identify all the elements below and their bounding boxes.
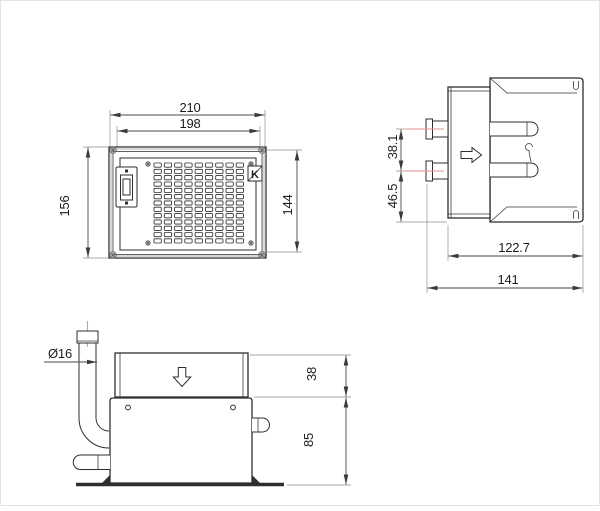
- vent-slot: [226, 214, 233, 218]
- vent-slot: [175, 182, 182, 186]
- vent-slot: [154, 226, 161, 230]
- vent-slot: [185, 239, 192, 243]
- screw-cross: [259, 147, 266, 154]
- vent-slot: [205, 176, 212, 180]
- vent-slot: [185, 182, 192, 186]
- vent-slot: [154, 214, 161, 218]
- screw-cross: [146, 162, 151, 167]
- vent-slot: [216, 214, 223, 218]
- vent-slot: [154, 163, 161, 167]
- vent-slot: [185, 214, 192, 218]
- dim-label-pipe-diameter: Ø16: [48, 346, 72, 361]
- pipe-stub-right: [252, 418, 270, 432]
- vent-slot: [195, 220, 202, 224]
- vent-slot: [154, 188, 161, 192]
- vent-slot: [195, 239, 202, 243]
- vent-slot: [216, 182, 223, 186]
- vent-slot: [216, 201, 223, 205]
- vent-slot: [236, 195, 243, 199]
- vent-slot: [236, 233, 243, 237]
- vent-slot: [236, 176, 243, 180]
- screw-cross: [249, 241, 254, 246]
- vent-slot: [236, 169, 243, 173]
- vent-slot: [195, 233, 202, 237]
- vent-slot: [236, 239, 243, 243]
- front-view: 210 198 156 144 K: [57, 100, 302, 258]
- vent-slot: [175, 201, 182, 205]
- vent-slot: [216, 176, 223, 180]
- dim-label-pipe-to-base: 46.5: [385, 184, 400, 209]
- vent-slot: [195, 226, 202, 230]
- vent-slot: [154, 176, 161, 180]
- vent-slot: [226, 233, 233, 237]
- vent-slot: [226, 163, 233, 167]
- vent-slot: [216, 195, 223, 199]
- dim-label-depth-outer: 141: [497, 272, 518, 287]
- vent-slot: [154, 201, 161, 205]
- vent-slot: [226, 239, 233, 243]
- vent-slot: [164, 226, 171, 230]
- vent-slot: [195, 176, 202, 180]
- vent-slot: [185, 207, 192, 211]
- screw-icon: [146, 162, 151, 167]
- vent-slot: [205, 233, 212, 237]
- vent-slot: [195, 207, 202, 211]
- vent-slot: [205, 207, 212, 211]
- vent-slot: [164, 169, 171, 173]
- vent-slot: [216, 239, 223, 243]
- vent-slot: [164, 188, 171, 192]
- dim-label-upper-height: 38: [304, 367, 319, 381]
- dim-label-depth-inner: 122.7: [498, 240, 530, 255]
- vent-slot: [154, 239, 161, 243]
- vent-slot: [195, 214, 202, 218]
- vent-slot: [164, 220, 171, 224]
- vent-slot: [236, 207, 243, 211]
- vent-slot: [226, 188, 233, 192]
- vent-slot: [226, 226, 233, 230]
- switch-screw-bottom: [125, 202, 128, 205]
- vent-slot: [226, 220, 233, 224]
- vent-slot: [205, 188, 212, 192]
- side-view: 38.1 46.5 122.7 141: [385, 78, 583, 293]
- vent-slot: [216, 163, 223, 167]
- vent-slot: [175, 239, 182, 243]
- vent-slot: [216, 188, 223, 192]
- vent-slot: [185, 201, 192, 205]
- vent-slot: [195, 163, 202, 167]
- vent-slot: [205, 182, 212, 186]
- power-switch: [116, 167, 137, 207]
- dim-label-width-inner: 198: [179, 116, 200, 131]
- vent-slot: [175, 195, 182, 199]
- base-foot-right: [252, 475, 260, 483]
- vent-slot: [185, 163, 192, 167]
- vertical-pipe: [77, 331, 109, 448]
- dim-label-height-inner: 144: [280, 194, 295, 215]
- vent-slot: [154, 182, 161, 186]
- vent-slot: [175, 188, 182, 192]
- vent-slot: [164, 207, 171, 211]
- vent-slot: [226, 176, 233, 180]
- dim-label-width-outer: 210: [179, 100, 200, 115]
- vent-slot: [226, 169, 233, 173]
- pipe-elbow: [79, 343, 109, 448]
- pipe-stub-left: [73, 455, 110, 470]
- vent-slot: [216, 169, 223, 173]
- screw-icon: [259, 147, 266, 154]
- vent-slot: [236, 188, 243, 192]
- vent-slot: [154, 233, 161, 237]
- screw-icon: [110, 147, 117, 154]
- vent-slot: [185, 188, 192, 192]
- vent-slot: [175, 176, 182, 180]
- vent-slot: [175, 220, 182, 224]
- vent-slot: [164, 176, 171, 180]
- vent-slot: [185, 176, 192, 180]
- vent-slot: [164, 214, 171, 218]
- vent-slot: [205, 201, 212, 205]
- vent-slot: [226, 207, 233, 211]
- screw-icon: [249, 241, 254, 246]
- screw-icon: [146, 241, 151, 246]
- vent-slot: [216, 207, 223, 211]
- screw-icon: [110, 252, 117, 259]
- vent-slot: [216, 233, 223, 237]
- vent-slot: [205, 195, 212, 199]
- vent-slot: [195, 188, 202, 192]
- logo-letter: K: [251, 169, 259, 181]
- vent-slot: [175, 233, 182, 237]
- vent-slot: [205, 169, 212, 173]
- vent-slot: [226, 195, 233, 199]
- vent-slot: [164, 195, 171, 199]
- vent-slot: [216, 220, 223, 224]
- vent-slot: [154, 207, 161, 211]
- pipe-end-tab-bottom: [490, 163, 538, 177]
- vent-slot: [236, 214, 243, 218]
- vent-slot: [154, 169, 161, 173]
- vent-slot: [164, 233, 171, 237]
- vent-slot: [226, 201, 233, 205]
- vent-slot: [154, 195, 161, 199]
- vent-slot: [185, 233, 192, 237]
- screw-cross: [146, 241, 151, 246]
- vent-slot: [175, 207, 182, 211]
- dim-label-lower-height: 85: [301, 433, 316, 447]
- brand-logo: K: [248, 166, 262, 181]
- mounting-plate: [490, 78, 583, 222]
- vent-slot: [236, 220, 243, 224]
- vent-slot: [205, 220, 212, 224]
- vent-slot: [205, 163, 212, 167]
- vent-slot: [236, 163, 243, 167]
- vent-slot: [195, 195, 202, 199]
- mounting-hole-right: [231, 405, 236, 410]
- vent-slot: [164, 182, 171, 186]
- lower-housing: [110, 398, 252, 483]
- vent-slot: [236, 201, 243, 205]
- vent-slot: [195, 169, 202, 173]
- screw-cross: [110, 252, 117, 259]
- pipe-end-tab-top: [490, 122, 538, 136]
- vent-slot: [175, 163, 182, 167]
- vent-slot: [175, 226, 182, 230]
- screw-cross: [110, 147, 117, 154]
- vent-slot: [236, 182, 243, 186]
- screw-cross: [259, 252, 266, 259]
- mounting-hole-left: [126, 405, 131, 410]
- technical-drawing-canvas: 210 198 156 144 K: [0, 0, 600, 506]
- vent-slot: [175, 214, 182, 218]
- vent-slot: [205, 214, 212, 218]
- vent-slot: [226, 182, 233, 186]
- vent-slot: [185, 195, 192, 199]
- vent-slot: [175, 169, 182, 173]
- vent-slot: [195, 182, 202, 186]
- vent-slot: [185, 220, 192, 224]
- bottom-view: Ø16 38 85: [44, 321, 351, 485]
- switch-screw-top: [125, 170, 128, 173]
- vent-slot: [205, 226, 212, 230]
- vent-slot: [164, 163, 171, 167]
- vent-slot: [154, 220, 161, 224]
- vent-slot: [185, 169, 192, 173]
- vent-slot: [164, 239, 171, 243]
- dim-label-pipe-spacing: 38.1: [385, 135, 400, 160]
- screw-icon: [259, 252, 266, 259]
- switch-rocker: [123, 179, 130, 195]
- dim-label-height-outer: 156: [57, 195, 72, 216]
- vent-slot: [195, 201, 202, 205]
- vent-slot: [236, 226, 243, 230]
- vent-slot: [216, 226, 223, 230]
- vent-slot: [185, 226, 192, 230]
- vent-slot: [205, 239, 212, 243]
- base-foot-left: [102, 475, 110, 483]
- vent-slot: [164, 201, 171, 205]
